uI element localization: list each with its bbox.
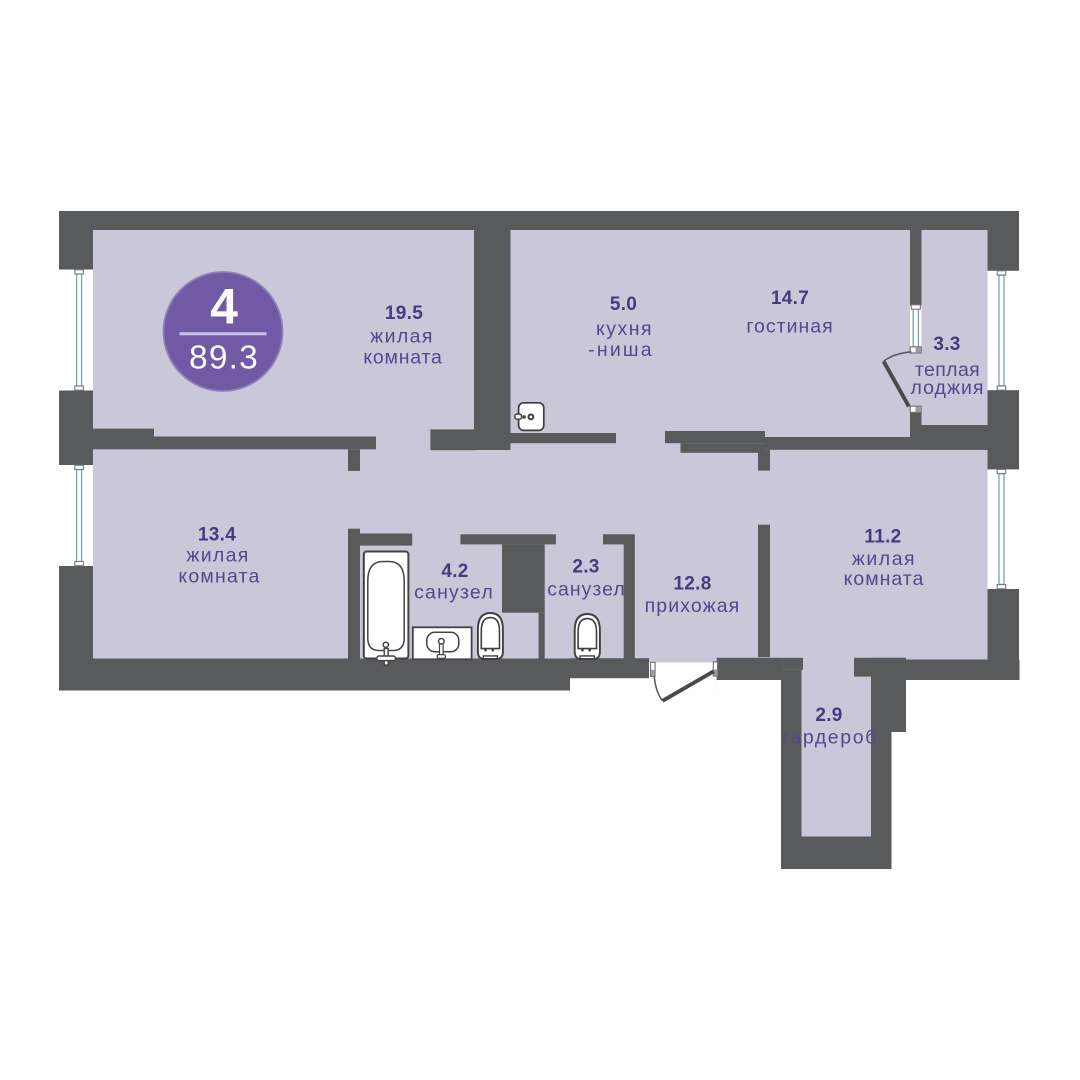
svg-text:5.0: 5.0	[610, 294, 637, 315]
svg-text:13.4: 13.4	[198, 525, 236, 546]
svg-text:89.3: 89.3	[189, 340, 259, 377]
svg-text:прихожая: прихожая	[645, 595, 741, 617]
svg-text:санузел: санузел	[414, 582, 494, 604]
svg-text:гардероб: гардероб	[782, 727, 878, 749]
svg-text:санузел: санузел	[547, 579, 625, 601]
svg-text:комната: комната	[363, 347, 442, 369]
svg-text:жилая: жилая	[186, 545, 249, 567]
svg-text:комната: комната	[178, 566, 260, 588]
svg-text:2.9: 2.9	[815, 705, 842, 726]
svg-text:комната: комната	[844, 568, 925, 590]
svg-text:лоджия: лоджия	[911, 377, 985, 399]
svg-text:гостиная: гостиная	[746, 316, 833, 338]
svg-text:12.8: 12.8	[673, 574, 711, 595]
svg-text:жилая: жилая	[852, 548, 916, 570]
svg-text:19.5: 19.5	[385, 303, 423, 324]
svg-text:-ниша: -ниша	[588, 339, 654, 361]
svg-text:14.7: 14.7	[771, 288, 809, 309]
svg-text:жилая: жилая	[370, 326, 434, 348]
svg-text:2.3: 2.3	[572, 557, 599, 578]
svg-text:кухня: кухня	[596, 318, 653, 340]
svg-text:11.2: 11.2	[864, 527, 901, 548]
svg-text:4: 4	[210, 279, 238, 335]
svg-text:4.2: 4.2	[441, 561, 468, 582]
svg-text:3.3: 3.3	[933, 334, 960, 355]
